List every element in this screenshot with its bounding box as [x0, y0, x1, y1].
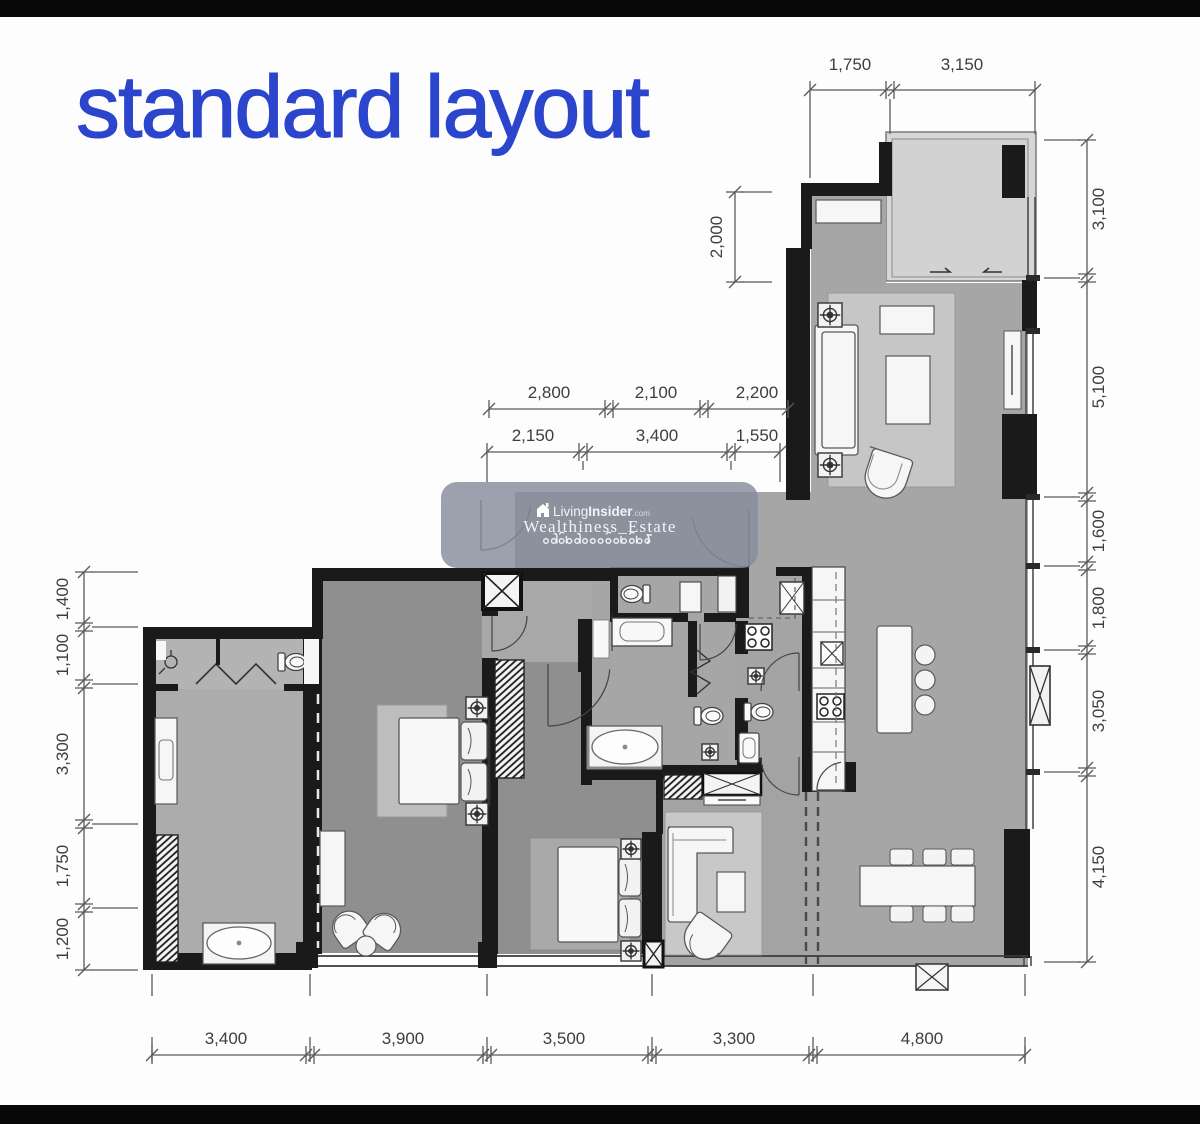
svg-text:3,150: 3,150 — [941, 55, 984, 74]
svg-text:Wealthiness_Estate: Wealthiness_Estate — [523, 517, 676, 536]
svg-text:3,050: 3,050 — [1089, 690, 1108, 733]
svg-text:4,800: 4,800 — [901, 1029, 944, 1048]
svg-text:2,800: 2,800 — [528, 383, 571, 402]
svg-text:3,900: 3,900 — [382, 1029, 425, 1048]
svg-text:5,100: 5,100 — [1089, 366, 1108, 409]
svg-text:4,150: 4,150 — [1089, 846, 1108, 889]
svg-text:2,200: 2,200 — [736, 383, 779, 402]
svg-text:1,600: 1,600 — [1089, 510, 1108, 553]
svg-text:3,400: 3,400 — [636, 426, 679, 445]
svg-text:1,400: 1,400 — [53, 578, 72, 621]
svg-text:3,500: 3,500 — [543, 1029, 586, 1048]
svg-text:1,550: 1,550 — [736, 426, 779, 445]
svg-text:3,400: 3,400 — [205, 1029, 248, 1048]
svg-text:3,300: 3,300 — [713, 1029, 756, 1048]
svg-text:2,150: 2,150 — [512, 426, 555, 445]
svg-text:3,300: 3,300 — [53, 733, 72, 776]
svg-text:2,000: 2,000 — [707, 216, 726, 259]
svg-text:3,100: 3,100 — [1089, 188, 1108, 231]
svg-text:1,800: 1,800 — [1089, 587, 1108, 630]
svg-text:standard layout: standard layout — [76, 57, 649, 156]
svg-text:2,100: 2,100 — [635, 383, 678, 402]
svg-text:1,100: 1,100 — [53, 634, 72, 677]
svg-text:1,750: 1,750 — [829, 55, 872, 74]
svg-text:1,750: 1,750 — [53, 845, 72, 888]
svg-text:1,200: 1,200 — [53, 918, 72, 961]
